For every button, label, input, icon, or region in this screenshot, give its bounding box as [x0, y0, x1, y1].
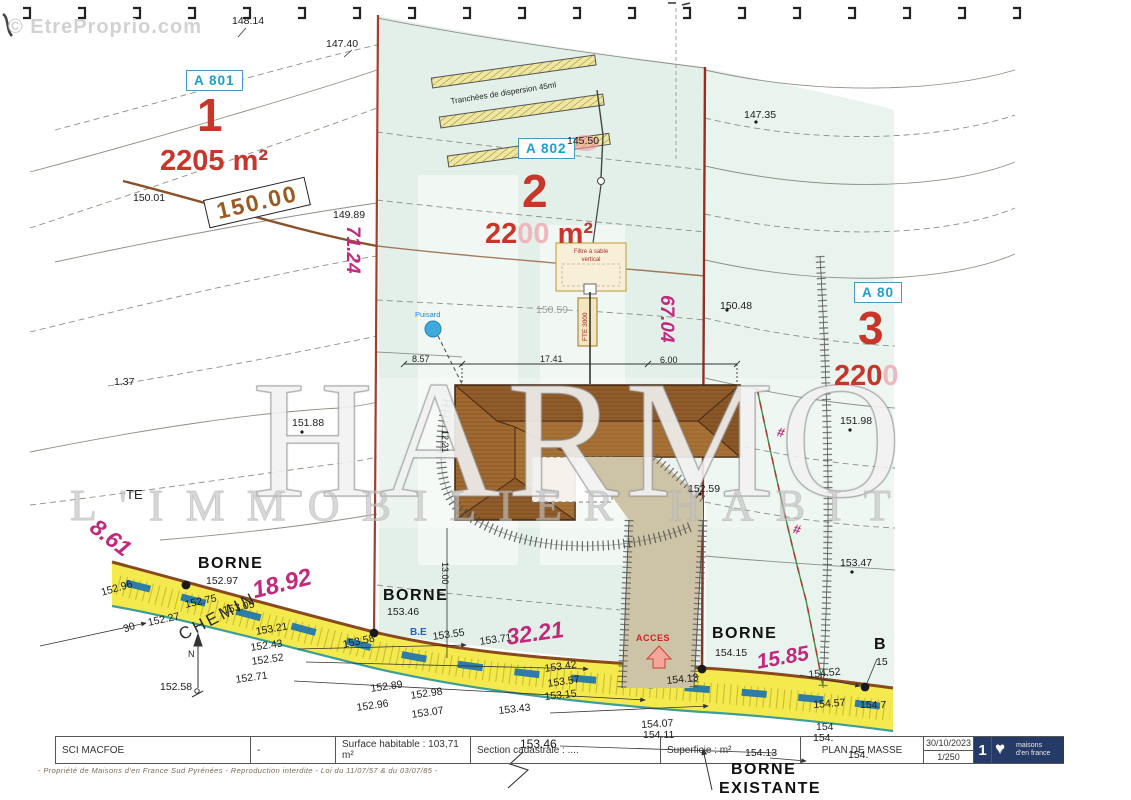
parcel-ref-a80x: A 80 [854, 282, 902, 303]
sand-filter-label: Filtre à sable vertical [557, 248, 625, 264]
title-block: SCI MACFOE - Surface habitable : 103,71 … [55, 736, 1064, 764]
soakaway-circle [425, 321, 441, 337]
heart-house-icon: ♥ ⌂ [995, 742, 1013, 758]
owner-cell: SCI MACFOE [56, 737, 251, 763]
date-scale-cell: 30/10/2023 1/250 [924, 737, 974, 763]
lot2-number: 2 [522, 168, 548, 214]
lot1-area: 2205 m² [160, 147, 268, 176]
septic-tank-label: FTE 3000 [582, 312, 589, 341]
lot3-number: 3 [858, 305, 884, 351]
plan-de-masse-page: © EtreProprio.com HARMON L'IMMOBILIER HA… [0, 0, 1131, 800]
doc-title-cell: PLAN DE MASSE [801, 737, 924, 763]
parcel-ref-a801: A 801 [186, 70, 243, 91]
source-watermark: © EtreProprio.com [8, 16, 202, 39]
scale-value: 1/250 [924, 751, 973, 764]
superficie-cell: Superficie : m² [661, 737, 801, 763]
parcel-ref-a802: A 802 [518, 138, 575, 159]
cadastre-cell: Section cadastrale : .... [471, 737, 661, 763]
lot1-number: 1 [197, 92, 223, 138]
lot3-area: 2200 [834, 362, 898, 391]
legal-notice: - Propriété de Maisons d'en France Sud P… [38, 766, 438, 775]
dash-cell: - [251, 737, 336, 763]
maisons-den-france-logo: ♥ ⌂ maisonsd'en france [992, 737, 1064, 763]
lot-boundary-west [374, 15, 378, 632]
north-arrow [192, 634, 203, 697]
page-number-cell: 1 [974, 737, 992, 763]
date-value: 30/10/2023 [924, 737, 973, 751]
agency-watermark-line2: L'IMMOBILIER HABITAT [70, 480, 900, 538]
lot2-area: 2200 m² [485, 220, 593, 249]
surface-cell: Surface habitable : 103,71 m² [336, 737, 471, 763]
